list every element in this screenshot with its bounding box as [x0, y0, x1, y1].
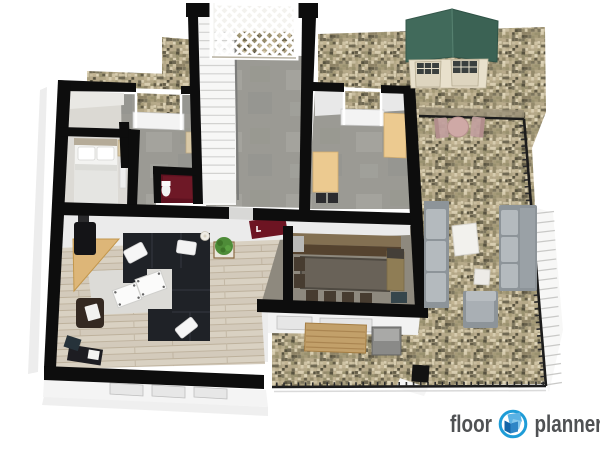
svg-text:planner: planner	[535, 411, 600, 438]
svg-text:floor: floor	[450, 411, 492, 438]
